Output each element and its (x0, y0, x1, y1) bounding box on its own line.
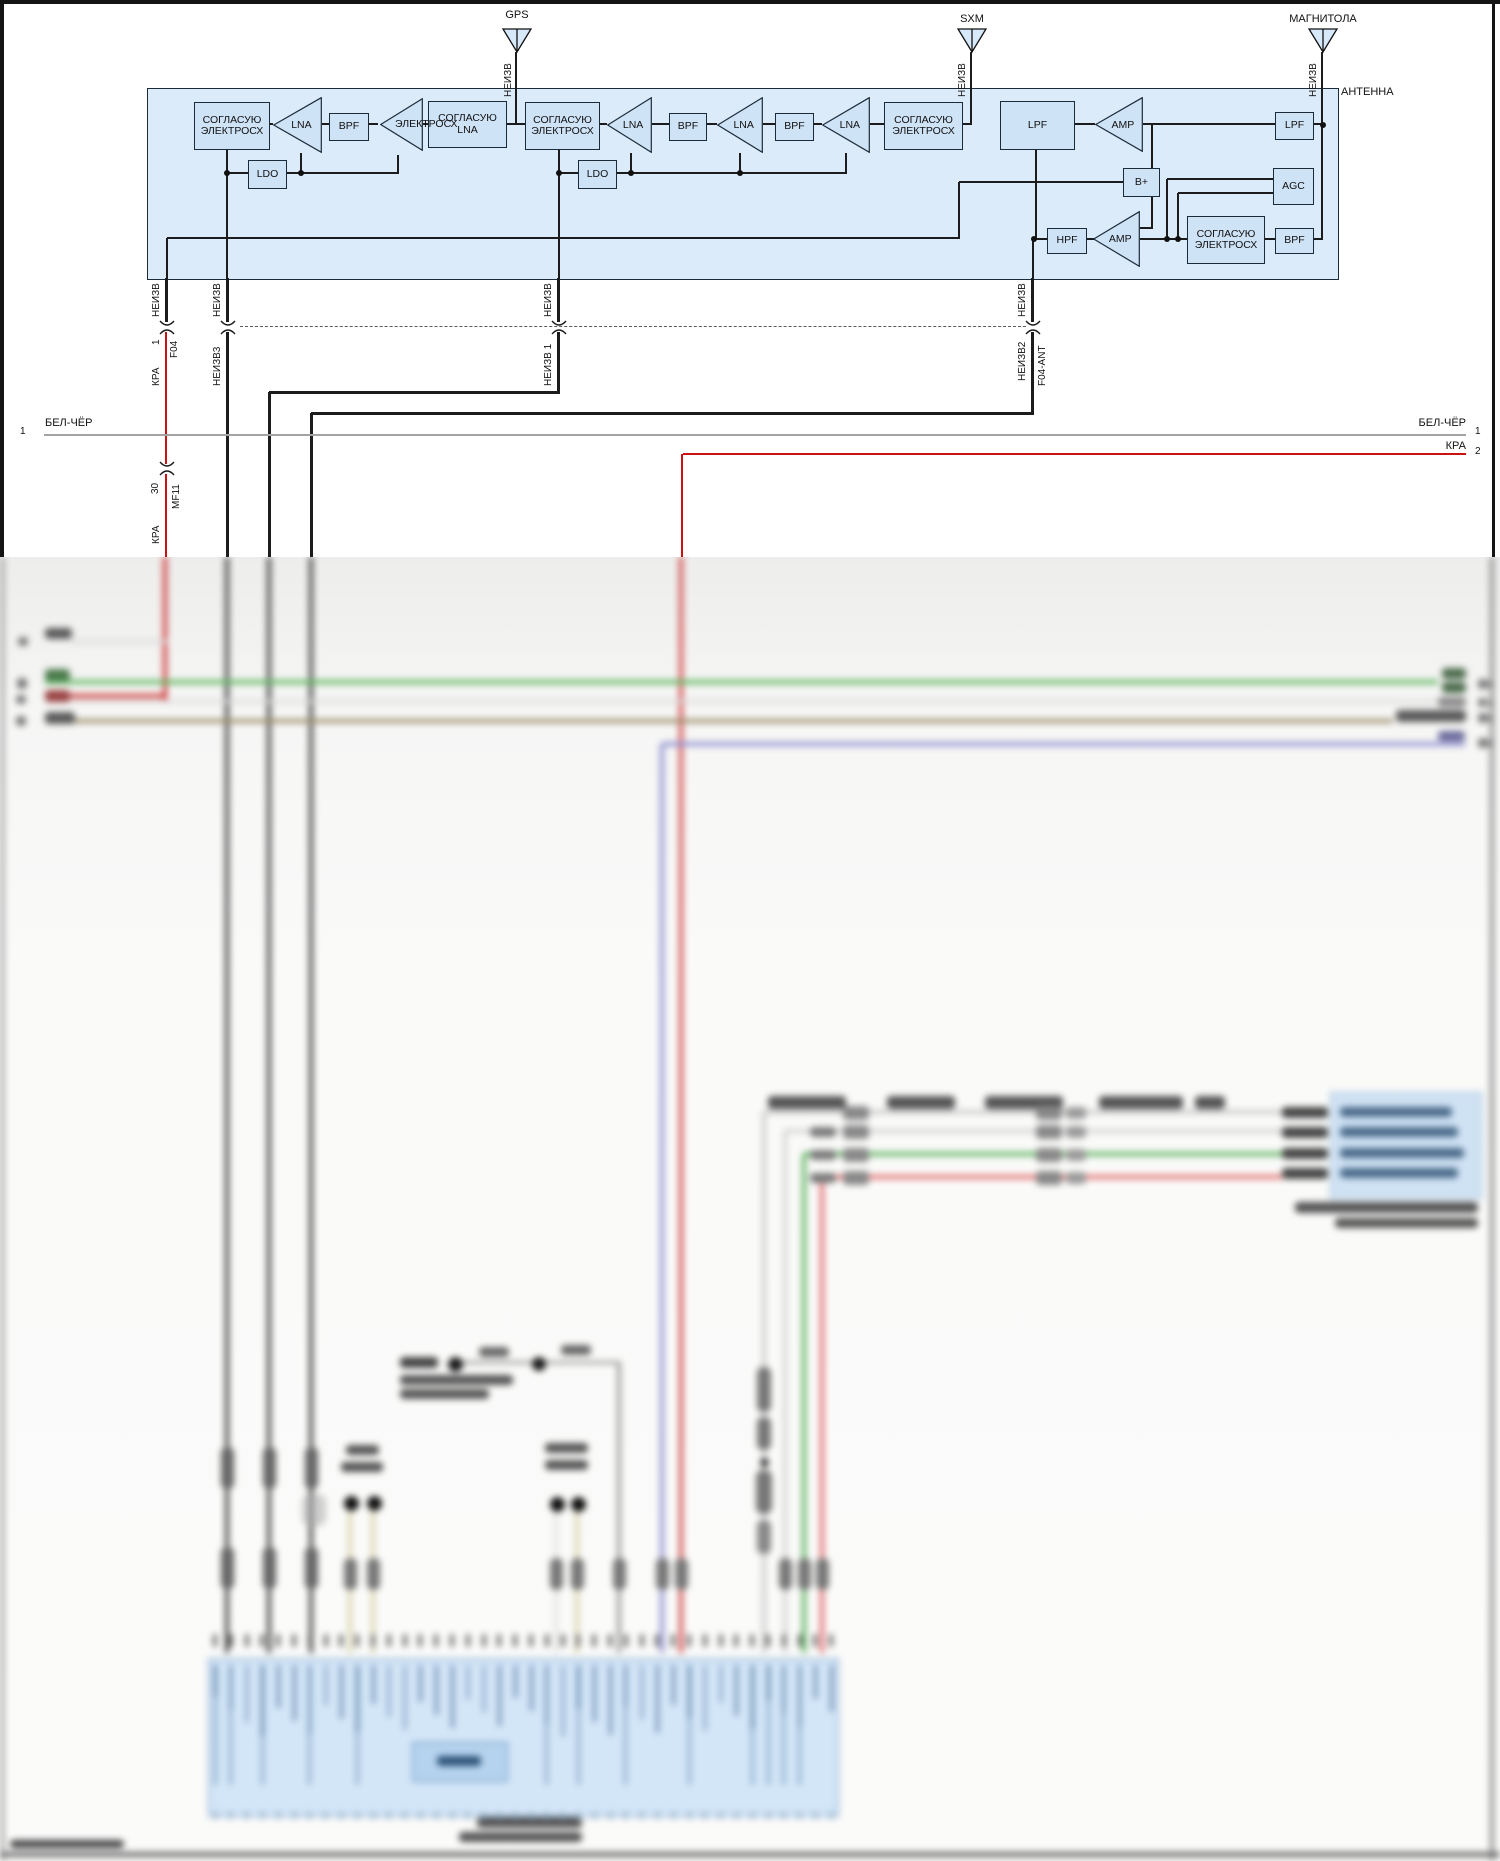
wire-label-f04-ant: F04-ANT (1037, 345, 1048, 386)
blurred-text-blob (734, 1634, 738, 1647)
blurred-text-blob (720, 1665, 723, 1703)
blurred-text-blob (324, 1634, 328, 1647)
blurred-text-blob (451, 1665, 454, 1728)
wire-horizontal (870, 123, 884, 124)
wire-vertical (397, 155, 398, 174)
wire-vertical (1177, 193, 1178, 240)
blurred-text-blob (1340, 1127, 1458, 1137)
blurred-text-blob (1478, 738, 1488, 748)
wire-label-неизв: НЕИЗВ (957, 63, 968, 97)
amplifier-label: LNA (733, 119, 753, 131)
blurred-text-blob (1099, 1096, 1183, 1109)
blurred-text-blob (1282, 1168, 1328, 1179)
wire-vertical (1032, 239, 1033, 278)
blurred-text-blob (779, 1558, 792, 1590)
blurred-text-blob (1066, 1107, 1086, 1119)
blurred-text-blob (750, 1634, 754, 1647)
blurred-text-blob (1442, 682, 1466, 693)
blurred-text-blob (767, 1665, 770, 1785)
blurred-text-blob (671, 1634, 675, 1647)
blurred-text-blob (545, 1443, 588, 1453)
wire-horizontal (269, 391, 560, 394)
wire-vertical (226, 278, 229, 322)
blurred-text-blob (404, 1665, 407, 1730)
wire-horizontal (763, 123, 775, 124)
blurred-text-blob (372, 1665, 375, 1704)
blurred-text-blob (45, 690, 70, 702)
block-text: ЭЛЕКТРОСХ (531, 126, 594, 138)
blurred-text-blob (675, 1558, 688, 1590)
antenna-label-sxm: SXM (942, 13, 1002, 25)
wire-horizontal (1073, 123, 1095, 124)
wire-horizontal (662, 742, 1465, 746)
blurred-text-blob (810, 1173, 836, 1183)
blurred-text-blob (498, 1665, 501, 1726)
label-электросх: ЭЛЕКТРОСХ (395, 118, 458, 130)
blurred-text-blob (17, 678, 27, 689)
blurred-text-blob (656, 1811, 659, 1820)
blurred-text-blob (372, 1811, 375, 1820)
wire-label-кра: КРА (151, 368, 162, 387)
wire-vertical (1151, 195, 1152, 229)
blurred-text-blob (766, 1634, 770, 1647)
block-bpf: BPF (775, 113, 814, 141)
blurred-text-blob (757, 1520, 771, 1554)
wire-vertical (970, 52, 973, 125)
wire-vertical (165, 278, 168, 322)
blurred-text-blob (355, 1634, 359, 1647)
blurred-text-blob (1489, 681, 1493, 688)
blurred-text-blob (735, 1811, 738, 1820)
blurred-text-blob (782, 1665, 785, 1785)
blurred-text-blob (830, 1811, 833, 1820)
block-согласую-электросх: СОГЛАСУЮЭЛЕКТРОСХ (1187, 216, 1265, 264)
blurred-text-blob (435, 1811, 438, 1820)
blurred-harness-content (0, 557, 1500, 1861)
block-lpf: LPF (1275, 112, 1314, 140)
blurred-text-blob (798, 1811, 801, 1820)
blurred-text-blob (387, 1811, 390, 1820)
blurred-text-blob (641, 1665, 644, 1720)
blurred-text-blob (810, 1150, 836, 1160)
wire-horizontal (0, 1852, 1500, 1857)
wire-horizontal (311, 412, 1034, 415)
blurred-text-blob (1195, 1096, 1225, 1109)
blurred-text-blob (434, 1634, 438, 1647)
blurred-text-blob (246, 1665, 249, 1723)
triangle-lna: LNA (822, 97, 870, 153)
blurred-text-blob (843, 1125, 869, 1139)
antenna-unit-label: АНТЕННА (1341, 86, 1394, 98)
blurred-text-blob (640, 1811, 643, 1820)
blurred-text-blob (340, 1665, 343, 1719)
wire-vertical (1151, 124, 1152, 169)
panel-box (208, 1658, 839, 1817)
wire-vertical (845, 153, 846, 174)
blurred-text-blob (45, 628, 72, 639)
blurred-text-blob (768, 1096, 846, 1109)
wire-horizontal (45, 719, 1393, 723)
blurred-text-blob (719, 1634, 723, 1647)
blurred-text-blob (798, 1634, 802, 1647)
blurred-text-blob (419, 1665, 422, 1702)
blurred-text-blob (276, 1634, 280, 1647)
wire-horizontal (322, 123, 329, 124)
blurred-text-blob (545, 1665, 548, 1785)
terminal-dot (367, 1496, 382, 1511)
blurred-text-blob (482, 1811, 485, 1820)
blurred-text-blob (341, 1462, 383, 1472)
blurred-text-blob (843, 1148, 869, 1162)
blurred-text-blob (577, 1811, 580, 1820)
block-bpf: BPF (669, 113, 707, 141)
terminal-dot (760, 1458, 769, 1467)
blurred-text-blob (1489, 715, 1493, 722)
blurred-text-blob (261, 1665, 264, 1785)
blurred-text-blob (483, 1665, 486, 1713)
blurred-text-blob (1282, 1107, 1328, 1118)
wire-horizontal (45, 680, 1438, 684)
triangle-amp: AMP (1095, 97, 1143, 152)
wire-label-неизв: НЕИЗВ (151, 283, 162, 317)
blurred-text-blob (344, 1558, 357, 1590)
blurred-text-blob (479, 1347, 509, 1357)
connector-boundary-dashed-line (240, 326, 1026, 327)
antenna-label-magnitola: МАГНИТОЛА (1263, 13, 1383, 25)
amplifier-label: LNA (291, 119, 311, 131)
terminal-dot (532, 1357, 546, 1371)
blurred-text-blob (704, 1665, 707, 1731)
antenna-icon (1308, 28, 1338, 54)
blurred-text-blob (403, 1634, 407, 1647)
block-bpf: BPF (329, 113, 369, 141)
blurred-text-blob (562, 1665, 565, 1737)
blurred-text-blob (229, 1811, 232, 1820)
wire-vertical (1031, 332, 1034, 414)
blurred-text-blob (18, 637, 28, 646)
blurred-text-blob (367, 1558, 380, 1590)
blurred-text-blob (593, 1811, 596, 1820)
blurred-text-blob (308, 1665, 311, 1785)
wire-horizontal (615, 172, 846, 173)
wire-vertical (226, 148, 227, 278)
bus1-right-label: БЕЛ-ЧЁР (1396, 417, 1466, 429)
blurred-text-blob (1438, 731, 1465, 741)
blurred-text-blob (530, 1665, 533, 1711)
blurred-text-blob (305, 1547, 318, 1589)
blurred-text-blob (513, 1634, 517, 1647)
wire-vertical (958, 182, 959, 239)
blurred-text-blob (830, 1665, 833, 1712)
blurred-text-blob (767, 1811, 770, 1820)
blurred-text-blob (260, 1634, 264, 1647)
wire-vertical (1321, 52, 1324, 125)
blurred-text-blob (1295, 1202, 1478, 1213)
block-согласую-электросх: СОГЛАСУЮЭЛЕКТРОСХ (525, 102, 600, 150)
blurred-text-blob (400, 1357, 438, 1368)
terminal-dot (550, 1497, 565, 1512)
blurred-text-blob (656, 1558, 669, 1590)
block-bpf: BPF (1275, 228, 1314, 254)
blurred-text-blob (613, 1558, 626, 1590)
blurred-text-blob (305, 1447, 318, 1489)
blurred-text-blob (482, 1634, 486, 1647)
triangle-lna: LNA (717, 97, 763, 153)
triangle-lna: LNA (607, 97, 652, 153)
wire-horizontal (70, 640, 167, 643)
wire-vertical (163, 557, 167, 700)
amplifier-label: LNA (623, 119, 643, 131)
blurred-text-blob (609, 1811, 612, 1820)
blurred-text-blob (719, 1811, 722, 1820)
block-ldo: LDO (578, 160, 617, 189)
wire-label-неизв-1: НЕИЗВ 1 (543, 344, 554, 386)
blurred-text-blob (229, 1634, 233, 1647)
blurred-text-blob (550, 1558, 563, 1590)
blurred-text-blob (387, 1634, 391, 1647)
wire-vertical (617, 1362, 621, 1653)
blurred-text-blob (1066, 1172, 1086, 1184)
blurred-text-blob (545, 1634, 549, 1647)
wire-vertical (1166, 179, 1167, 240)
blurred-text-blob (751, 1811, 754, 1820)
block-text: BPF (1284, 235, 1304, 247)
wire-vertical (1031, 278, 1034, 322)
blurred-text-blob (609, 1665, 612, 1735)
blurred-text-blob (735, 1665, 738, 1716)
blurred-text-blob (757, 1367, 771, 1412)
wire-label-f04: F04 (169, 341, 180, 358)
blurred-text-blob (277, 1811, 280, 1820)
blurred-text-blob (1036, 1171, 1062, 1185)
blurred-text-blob (640, 1634, 644, 1647)
blurred-text-blob (887, 1096, 955, 1109)
blurred-text-blob (435, 1665, 438, 1715)
terminal-dot (448, 1357, 463, 1372)
blurred-text-blob (561, 1634, 565, 1647)
block-text: HPF (1057, 235, 1078, 247)
blurred-text-blob (1489, 740, 1493, 747)
blurred-text-blob (308, 1811, 311, 1820)
blurred-text-blob (624, 1811, 627, 1820)
wire-vertical (166, 238, 167, 278)
blurred-text-blob (467, 1665, 470, 1700)
blurred-text-blob (672, 1811, 675, 1820)
blurred-text-blob (221, 1447, 234, 1489)
blurred-text-blob (293, 1811, 296, 1820)
blurred-text-blob (263, 1547, 276, 1589)
blurred-text-blob (10, 1840, 124, 1848)
wire-horizontal (227, 172, 248, 173)
wiring-diagram-page: GPS SXM МАГНИТОЛА АНТЕННА B+ 1 БЕЛ-ЧЁР Б… (0, 0, 1500, 1861)
blurred-text-blob (339, 1634, 343, 1647)
blurred-text-blob (1442, 668, 1466, 679)
amplifier-label: AMP (1111, 119, 1134, 131)
wire-vertical (226, 332, 229, 559)
blurred-text-blob (688, 1665, 691, 1785)
wire-vertical (557, 278, 560, 322)
blurred-text-blob (813, 1634, 817, 1647)
blurred-text-blob (529, 1634, 533, 1647)
blurred-text-blob (16, 716, 26, 726)
blurred-text-blob (1066, 1149, 1086, 1161)
blurred-text-blob (293, 1665, 296, 1721)
blurred-text-blob (466, 1811, 469, 1820)
wire-label-неизв2: НЕИЗВ2 (1017, 342, 1028, 381)
wire-vertical (165, 474, 168, 559)
blurred-text-blob (1282, 1148, 1328, 1159)
blurred-text-blob (687, 1634, 691, 1647)
blurred-text-blob (814, 1665, 817, 1699)
amplifier-label: AMP (1109, 233, 1132, 245)
block-agc: AGC (1273, 168, 1314, 205)
blurred-text-blob (798, 1558, 811, 1590)
bus1-left-number: 1 (20, 426, 26, 437)
blurred-text-blob (45, 669, 70, 681)
blurred-text-blob (756, 1470, 772, 1514)
blurred-text-blob (1036, 1106, 1062, 1120)
wire-vertical (1321, 124, 1322, 240)
blurred-text-blob (577, 1665, 580, 1785)
blurred-text-blob (608, 1634, 612, 1647)
amplifier-label: LNA (840, 119, 860, 131)
blurred-text-blob (571, 1558, 584, 1590)
blurred-text-blob (419, 1811, 422, 1820)
blurred-text-blob (810, 1127, 836, 1137)
wire-vertical (515, 52, 518, 125)
blurred-text-blob (545, 1460, 588, 1470)
wire-label-1: 1 (151, 339, 162, 345)
wire-vertical (681, 454, 684, 559)
blurred-text-blob (245, 1811, 248, 1820)
block-согласую-электросх: СОГЛАСУЮЭЛЕКТРОСХ (884, 102, 963, 150)
wire-horizontal (1143, 123, 1275, 124)
blurred-text-blob (843, 1106, 869, 1120)
triangle-amp: AMP (1093, 211, 1140, 267)
bus1-left-label: БЕЛ-ЧЁР (45, 417, 92, 429)
wire-horizontal (652, 123, 669, 124)
block-text: LPF (1028, 120, 1047, 132)
blurred-text-blob (782, 1811, 785, 1820)
antenna-icon (957, 28, 987, 54)
block-text: LDO (257, 169, 279, 181)
blurred-text-blob (292, 1634, 296, 1647)
blurred-text-blob (214, 1665, 217, 1785)
wire-label-неизв: НЕИЗВ (543, 283, 554, 317)
blurred-text-blob (346, 1445, 379, 1455)
wire-horizontal (44, 434, 1466, 435)
wire-horizontal (764, 1110, 1282, 1114)
blurred-text-blob (400, 1375, 513, 1385)
wire-label-неизв3: НЕИЗВ3 (212, 347, 223, 386)
blurred-text-blob (1036, 1125, 1062, 1139)
blurred-text-blob (451, 1811, 454, 1820)
block-text: ЭЛЕКТРОСХ (201, 126, 264, 138)
wire-horizontal (1167, 178, 1273, 179)
wire-horizontal (1178, 192, 1273, 193)
blurred-text-blob (1066, 1126, 1086, 1138)
triangle-lna: LNA (273, 97, 322, 153)
bus2-right-label: КРА (1396, 440, 1466, 452)
blurred-text-blob (45, 712, 75, 724)
blurred-text-blob (1478, 679, 1488, 689)
block-lpf: LPF (1000, 101, 1075, 150)
wire-horizontal (167, 237, 959, 238)
blurred-text-blob (843, 1171, 869, 1185)
wire-horizontal (45, 700, 1438, 703)
blurred-text-blob (340, 1811, 343, 1820)
wire-label-неизв: НЕИЗВ (212, 283, 223, 317)
blurred-text-blob (1282, 1127, 1328, 1138)
wire-label-кра: КРА (151, 526, 162, 545)
wire-vertical (268, 392, 271, 559)
blurred-text-blob (576, 1634, 580, 1647)
blurred-text-blob (302, 1494, 326, 1526)
wire-label-неизв: НЕИЗВ (1308, 63, 1319, 97)
blurred-text-blob (593, 1665, 596, 1722)
wire-horizontal (683, 453, 1466, 456)
blurred-text-blob (751, 1665, 754, 1785)
blurred-text-blob (324, 1811, 327, 1820)
block-text: LNA (457, 125, 477, 137)
blurred-text-blob (624, 1665, 627, 1785)
terminal-dot (344, 1496, 359, 1511)
block-ldo: LDO (248, 160, 287, 189)
blurred-text-blob (245, 1634, 249, 1647)
blurred-text-blob (816, 1558, 829, 1590)
block-text: BPF (678, 121, 698, 133)
blurred-text-blob (624, 1634, 628, 1647)
blurred-text-blob (418, 1634, 422, 1647)
blurred-text-blob (798, 1665, 801, 1785)
blurred-text-blob (703, 1811, 706, 1820)
blurred-text-blob (757, 1417, 771, 1450)
wire-vertical (1, 557, 4, 1861)
blurred-text-blob (1036, 1148, 1062, 1162)
wire-vertical (557, 332, 560, 393)
blurred-text-blob (561, 1811, 564, 1820)
wire-label-mf11: MF11 (171, 484, 182, 509)
blurred-harness-section (0, 557, 1500, 1861)
block-text: ЭЛЕКТРОСХ (1195, 240, 1258, 252)
blurred-text-blob (214, 1811, 217, 1820)
blurred-text-blob (325, 1665, 328, 1706)
blurred-text-blob (261, 1811, 264, 1820)
blurred-text-blob (459, 1832, 582, 1842)
blurred-text-blob (213, 1634, 217, 1647)
block-b+: B+ (1123, 168, 1160, 197)
blurred-text-blob (1478, 713, 1488, 723)
blurred-text-blob (450, 1634, 454, 1647)
block-text: BPF (339, 121, 359, 133)
blurred-text-blob (514, 1665, 517, 1698)
blurred-text-blob (16, 695, 26, 704)
antenna-amplifier-schematic: GPS SXM МАГНИТОЛА АНТЕННА B+ 1 БЕЛ-ЧЁР Б… (0, 0, 1500, 557)
wire-vertical (660, 744, 664, 1653)
blurred-text-blob (308, 1634, 312, 1647)
blurred-text-blob (530, 1811, 533, 1820)
blurred-text-blob (561, 1345, 591, 1355)
wire-horizontal (959, 181, 1123, 182)
blurred-text-blob (1438, 697, 1466, 707)
blurred-text-blob (277, 1665, 280, 1708)
blurred-text-blob (672, 1665, 675, 1705)
blurred-text-blob (1335, 1218, 1478, 1228)
blurred-text-blob (1340, 1168, 1458, 1178)
block-hpf: HPF (1047, 228, 1087, 254)
blurred-text-blob (403, 1811, 406, 1820)
blurred-text-blob (221, 1547, 234, 1589)
